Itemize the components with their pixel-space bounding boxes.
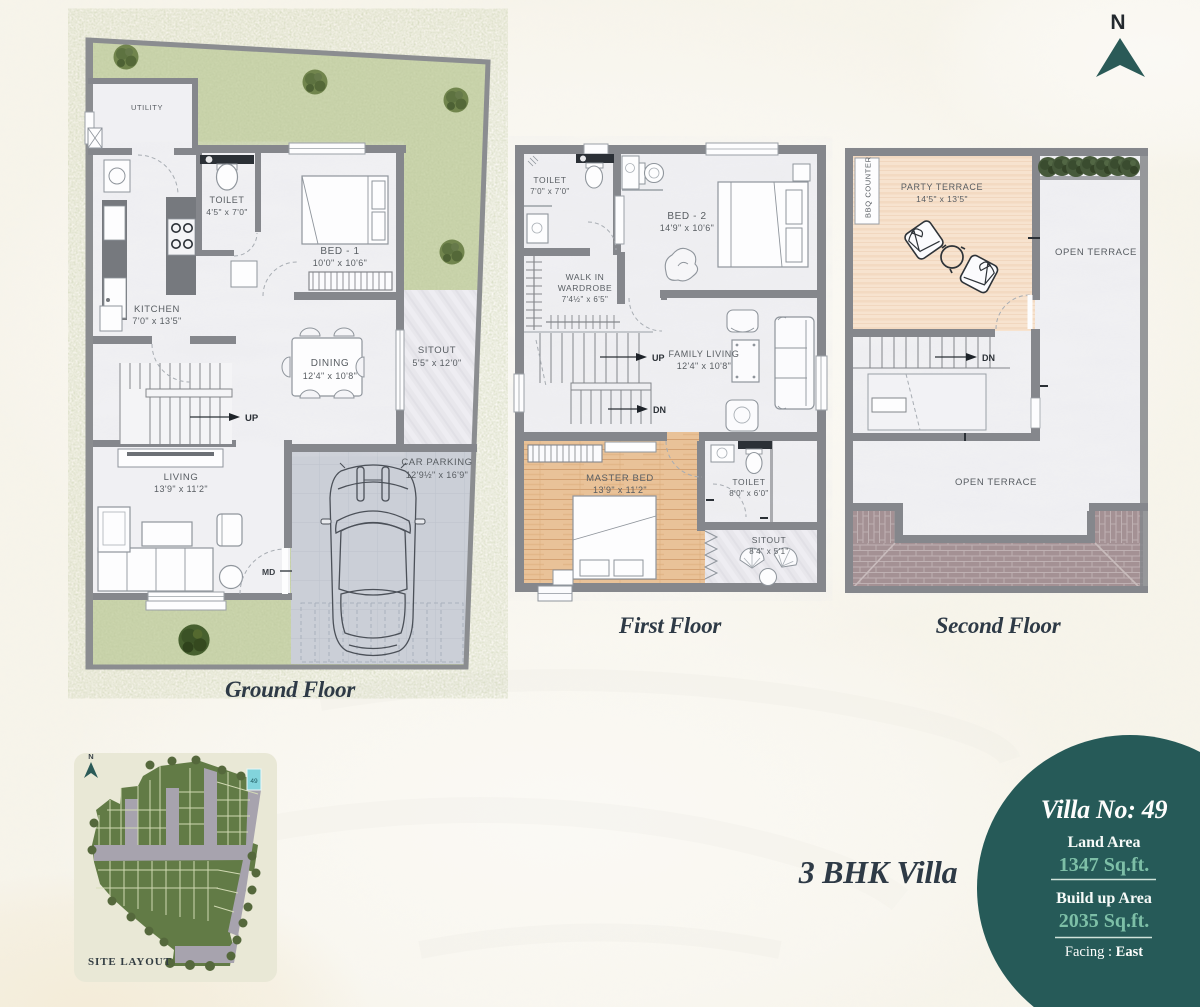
svg-text:N: N — [88, 752, 93, 761]
svg-text:UP: UP — [652, 353, 665, 363]
svg-text:PARTY TERRACE: PARTY TERRACE — [901, 182, 983, 192]
svg-text:N: N — [1110, 11, 1125, 34]
svg-text:4'5" x 7'0": 4'5" x 7'0" — [206, 207, 248, 217]
svg-text:2035 Sq.ft.: 2035 Sq.ft. — [1059, 910, 1150, 932]
svg-text:13'9" x 11'2": 13'9" x 11'2" — [154, 484, 208, 494]
svg-text:7'0" x 7'0": 7'0" x 7'0" — [530, 187, 569, 196]
svg-text:FAMILY LIVING: FAMILY LIVING — [669, 349, 740, 359]
svg-text:OPEN TERRACE: OPEN TERRACE — [955, 477, 1037, 488]
svg-text:12'9½" x 16'9": 12'9½" x 16'9" — [406, 470, 468, 480]
svg-text:14'9" x 10'6": 14'9" x 10'6" — [660, 223, 715, 233]
svg-text:CAR PARKING: CAR PARKING — [401, 457, 472, 468]
svg-text:UTILITY: UTILITY — [131, 103, 163, 112]
svg-text:7'0" x 13'5": 7'0" x 13'5" — [132, 316, 181, 326]
svg-text:MASTER BED: MASTER BED — [586, 473, 654, 484]
svg-text:SITOUT: SITOUT — [418, 345, 456, 356]
svg-text:SITOUT: SITOUT — [752, 535, 787, 545]
svg-text:49: 49 — [250, 778, 258, 785]
svg-text:BED - 1: BED - 1 — [320, 246, 359, 257]
svg-text:14'5" x 13'5": 14'5" x 13'5" — [916, 194, 968, 204]
svg-text:DINING: DINING — [311, 358, 350, 369]
svg-text:Facing : East: Facing : East — [1065, 944, 1143, 960]
svg-text:Build up Area: Build up Area — [1056, 890, 1152, 907]
svg-text:BBQ COUNTER: BBQ COUNTER — [864, 156, 873, 218]
svg-text:8'0" x 6'0": 8'0" x 6'0" — [729, 489, 768, 498]
svg-text:WALK IN: WALK IN — [566, 272, 605, 282]
svg-text:UP: UP — [245, 413, 259, 424]
svg-text:10'0" x 10'6": 10'0" x 10'6" — [313, 258, 368, 268]
svg-text:TOILET: TOILET — [210, 195, 245, 205]
svg-text:TOILET: TOILET — [533, 175, 566, 185]
svg-text:7'4½" x 6'5": 7'4½" x 6'5" — [562, 295, 608, 304]
svg-text:Ground Floor: Ground Floor — [225, 677, 356, 702]
svg-text:DN: DN — [982, 353, 995, 363]
svg-text:5'5" x 12'0": 5'5" x 12'0" — [412, 358, 461, 368]
svg-text:KITCHEN: KITCHEN — [134, 304, 180, 315]
svg-text:SITE LAYOUT: SITE LAYOUT — [88, 956, 172, 968]
svg-text:DN: DN — [653, 405, 666, 415]
svg-text:12'4" x 10'8": 12'4" x 10'8" — [677, 361, 732, 371]
svg-text:TOILET: TOILET — [732, 477, 765, 487]
svg-text:12'4" x 10'8": 12'4" x 10'8" — [303, 371, 358, 381]
svg-text:BED - 2: BED - 2 — [667, 211, 706, 222]
svg-text:1347 Sq.ft.: 1347 Sq.ft. — [1059, 854, 1150, 876]
svg-text:First Floor: First Floor — [618, 613, 723, 638]
svg-text:Villa No: 49: Villa No: 49 — [1041, 795, 1168, 824]
svg-text:Second Floor: Second Floor — [936, 613, 1062, 638]
svg-text:LIVING: LIVING — [164, 472, 199, 483]
svg-text:8'4" x 5'1": 8'4" x 5'1" — [749, 547, 788, 556]
svg-text:Land Area: Land Area — [1067, 834, 1140, 851]
svg-text:13'9" x 11'2": 13'9" x 11'2" — [593, 485, 647, 495]
svg-text:MD: MD — [262, 567, 275, 577]
svg-text:OPEN TERRACE: OPEN TERRACE — [1055, 247, 1137, 258]
svg-text:WARDROBE: WARDROBE — [558, 283, 613, 293]
svg-text:3 BHK Villa: 3 BHK Villa — [798, 854, 958, 890]
